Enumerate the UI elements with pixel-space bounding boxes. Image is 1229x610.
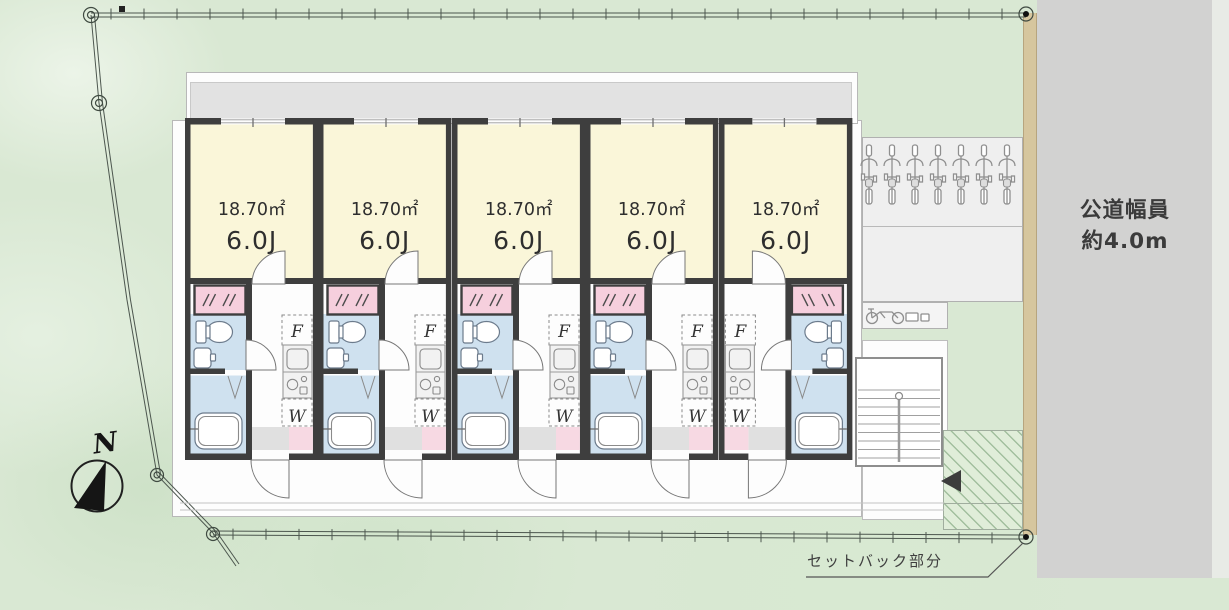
building-units: 18.70㎡ 6.0J F W bbox=[0, 0, 1229, 610]
fridge-label: F bbox=[423, 322, 437, 342]
unit-geometry bbox=[585, 118, 718, 498]
entrance-door-arc bbox=[251, 460, 289, 498]
closet bbox=[791, 286, 842, 315]
toilet-tank-icon bbox=[196, 321, 206, 343]
unit-3: 18.70㎡ 6.0J F W bbox=[452, 118, 585, 508]
entrance-door-arc bbox=[651, 460, 689, 498]
closet bbox=[194, 286, 245, 315]
sink-icon bbox=[826, 348, 843, 368]
washer-label: W bbox=[688, 407, 707, 427]
setback-label: セットバック部分 bbox=[807, 550, 997, 571]
north-label: N bbox=[91, 426, 120, 460]
toilet-tank-icon bbox=[831, 321, 841, 343]
entry-mat bbox=[519, 427, 556, 450]
unit-geometry bbox=[719, 118, 852, 498]
unit-size-label: 6.0J bbox=[626, 226, 677, 255]
entry-mat-pink bbox=[289, 427, 313, 450]
closet bbox=[595, 286, 646, 315]
entry-mat-pink bbox=[724, 427, 748, 450]
unit-size-label: 6.0J bbox=[760, 226, 811, 255]
unit-1: 18.70㎡ 6.0J F W bbox=[185, 118, 318, 508]
unit-size-label: 6.0J bbox=[493, 226, 544, 255]
washer-label: W bbox=[731, 407, 750, 427]
entry-mat-pink bbox=[556, 427, 580, 450]
entry-mat bbox=[252, 427, 289, 450]
fridge-label: F bbox=[557, 322, 571, 342]
fridge-label: F bbox=[733, 322, 747, 342]
entry-mat bbox=[385, 427, 422, 450]
entry-mat bbox=[652, 427, 689, 450]
closet bbox=[328, 286, 379, 315]
closet bbox=[461, 286, 512, 315]
unit-area-label: 18.70㎡ bbox=[351, 200, 419, 220]
unit-2: 18.70㎡ 6.0J F W bbox=[318, 118, 451, 508]
unit-size-label: 6.0J bbox=[360, 226, 411, 255]
unit-geometry bbox=[318, 118, 451, 498]
sink-icon bbox=[461, 348, 478, 368]
site-plan: 18.70㎡ 6.0J F W bbox=[0, 0, 1229, 610]
unit-geometry bbox=[185, 118, 318, 498]
unit-size-label: 6.0J bbox=[226, 226, 277, 255]
entry-mat-pink bbox=[422, 427, 446, 450]
entrance-door-arc bbox=[748, 460, 786, 498]
sink-icon bbox=[594, 348, 611, 368]
unit-area-label: 18.70㎡ bbox=[618, 200, 686, 220]
washer-label: W bbox=[555, 407, 574, 427]
entrance-door-arc bbox=[518, 460, 556, 498]
unit-area-label: 18.70㎡ bbox=[485, 200, 553, 220]
entry-mat-pink bbox=[689, 427, 713, 450]
bathtub-icon bbox=[195, 413, 242, 449]
sink-icon bbox=[327, 348, 344, 368]
entrance-door-arc bbox=[384, 460, 422, 498]
bathtub-icon bbox=[795, 413, 842, 449]
fridge-label: F bbox=[290, 322, 304, 342]
sink-icon bbox=[194, 348, 211, 368]
unit-4: 18.70㎡ 6.0J F W bbox=[585, 118, 718, 508]
entry-mat bbox=[748, 427, 785, 450]
washer-label: W bbox=[288, 407, 307, 427]
washer-label: W bbox=[422, 407, 441, 427]
bathtub-icon bbox=[595, 413, 642, 449]
fridge-label: F bbox=[690, 322, 704, 342]
road-width-label: 公道幅員 約4.0m bbox=[1040, 196, 1210, 257]
toilet-tank-icon bbox=[329, 321, 339, 343]
unit-geometry bbox=[452, 118, 585, 498]
bathtub-icon bbox=[328, 413, 375, 449]
unit-area-label: 18.70㎡ bbox=[218, 200, 286, 220]
unit-area-label: 18.70㎡ bbox=[752, 200, 820, 220]
bathtub-icon bbox=[462, 413, 509, 449]
toilet-tank-icon bbox=[596, 321, 606, 343]
unit-5: 18.70㎡ 6.0J F W bbox=[719, 118, 852, 508]
toilet-tank-icon bbox=[463, 321, 473, 343]
